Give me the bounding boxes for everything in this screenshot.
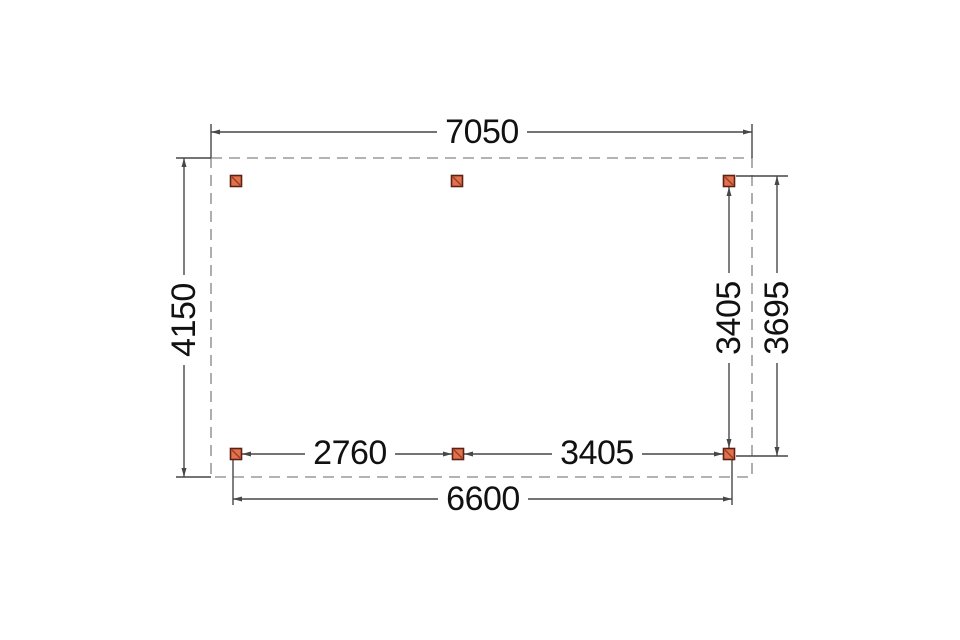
arrowhead — [743, 130, 752, 135]
dimension-label-right-inner-span: 3405 — [710, 281, 748, 355]
arrowhead — [723, 497, 732, 502]
dimension-label-bottom-overall: 6600 — [446, 480, 520, 518]
dimension-labels: 7050 4150 3405 3695 2760 3405 6600 — [165, 113, 796, 518]
post-bottom-middle — [453, 449, 464, 460]
post-bottom-left — [231, 449, 242, 460]
dashed-outline-rect — [211, 158, 752, 477]
technical-drawing-canvas: 7050 4150 3405 3695 2760 3405 6600 — [0, 0, 960, 640]
dimension-label-right-outer-span: 3695 — [758, 281, 796, 355]
arrowhead — [242, 452, 251, 457]
arrowhead — [775, 447, 780, 456]
post-top-middle — [452, 176, 463, 187]
dimension-label-bottom-left-span: 2760 — [313, 434, 387, 472]
dimension-label-overall-depth: 4150 — [165, 283, 203, 357]
arrowhead — [443, 452, 452, 457]
arrowhead — [233, 497, 242, 502]
arrowhead — [182, 468, 187, 477]
arrowhead — [714, 452, 723, 457]
post-top-right — [724, 176, 735, 187]
dimension-label-overall-width: 7050 — [445, 113, 519, 151]
post-top-left — [231, 176, 242, 187]
floor-plan-drawing: 7050 4150 3405 3695 2760 3405 6600 — [0, 0, 960, 640]
arrowhead — [775, 176, 780, 185]
label-halos — [167, 115, 794, 516]
dimension-lines — [184, 132, 777, 499]
extension-lines — [176, 124, 788, 505]
arrowhead — [727, 439, 732, 448]
dimension-label-bottom-right-span: 3405 — [560, 434, 634, 472]
arrowhead — [727, 187, 732, 196]
dimension-arrowheads — [182, 130, 780, 502]
arrowhead — [464, 452, 473, 457]
arrowhead — [182, 158, 187, 167]
posts — [231, 176, 735, 460]
post-bottom-right — [724, 449, 735, 460]
arrowhead — [211, 130, 220, 135]
